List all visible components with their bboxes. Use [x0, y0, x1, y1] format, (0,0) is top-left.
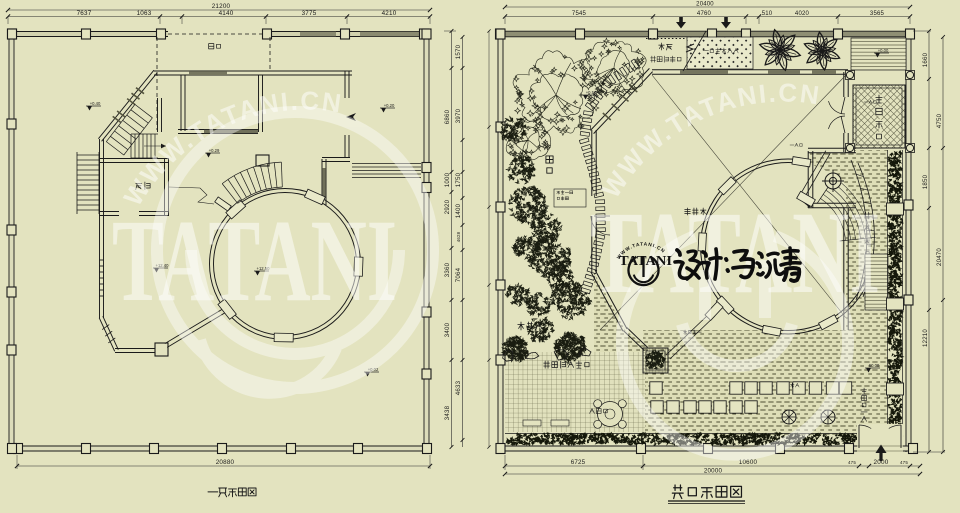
svg-text:4140: 4140 — [219, 10, 234, 17]
svg-text:3360: 3360 — [444, 262, 451, 277]
svg-text:20880: 20880 — [216, 459, 235, 466]
svg-text:1570: 1570 — [455, 44, 462, 59]
svg-text:TATANI: TATANI — [619, 254, 672, 269]
svg-text:20470: 20470 — [936, 248, 943, 266]
svg-text:7637: 7637 — [77, 10, 92, 17]
svg-text:1000: 1000 — [444, 172, 451, 187]
svg-text:3400: 3400 — [444, 322, 451, 337]
svg-text:1400: 1400 — [455, 203, 462, 218]
svg-text:1063: 1063 — [137, 10, 152, 17]
svg-text:7064: 7064 — [455, 267, 462, 282]
svg-text:+0.00: +0.00 — [878, 48, 889, 53]
svg-text:4760: 4760 — [697, 11, 712, 17]
svg-text:20400: 20400 — [696, 2, 714, 8]
svg-text:7545: 7545 — [572, 11, 587, 17]
svg-text:2920: 2920 — [444, 199, 451, 214]
svg-text:1850: 1850 — [922, 174, 929, 189]
svg-text:12210: 12210 — [922, 329, 929, 347]
svg-text:1750: 1750 — [455, 172, 462, 187]
svg-text:4750: 4750 — [936, 113, 943, 128]
svg-text:+0.40: +0.40 — [90, 101, 101, 106]
svg-text:6725: 6725 — [571, 459, 586, 466]
svg-text:475: 475 — [848, 460, 856, 465]
svg-text:20000: 20000 — [704, 468, 723, 475]
svg-text:6860: 6860 — [444, 109, 451, 124]
svg-text:3970: 3970 — [455, 108, 462, 123]
svg-text:3565: 3565 — [870, 11, 885, 17]
svg-text:4210: 4210 — [382, 10, 397, 17]
svg-text:475: 475 — [900, 460, 908, 465]
svg-text:3438: 3438 — [444, 405, 451, 420]
svg-text:60.00: 60.00 — [869, 363, 880, 368]
svg-text:4628: 4628 — [456, 231, 461, 242]
svg-text:2000: 2000 — [873, 459, 888, 466]
svg-text:3775: 3775 — [302, 10, 317, 17]
svg-text:4633: 4633 — [455, 380, 462, 395]
svg-text:1660: 1660 — [922, 52, 929, 67]
svg-text:+0.20: +0.20 — [384, 103, 395, 108]
svg-text:510: 510 — [762, 11, 773, 17]
svg-text:4020: 4020 — [795, 11, 810, 17]
